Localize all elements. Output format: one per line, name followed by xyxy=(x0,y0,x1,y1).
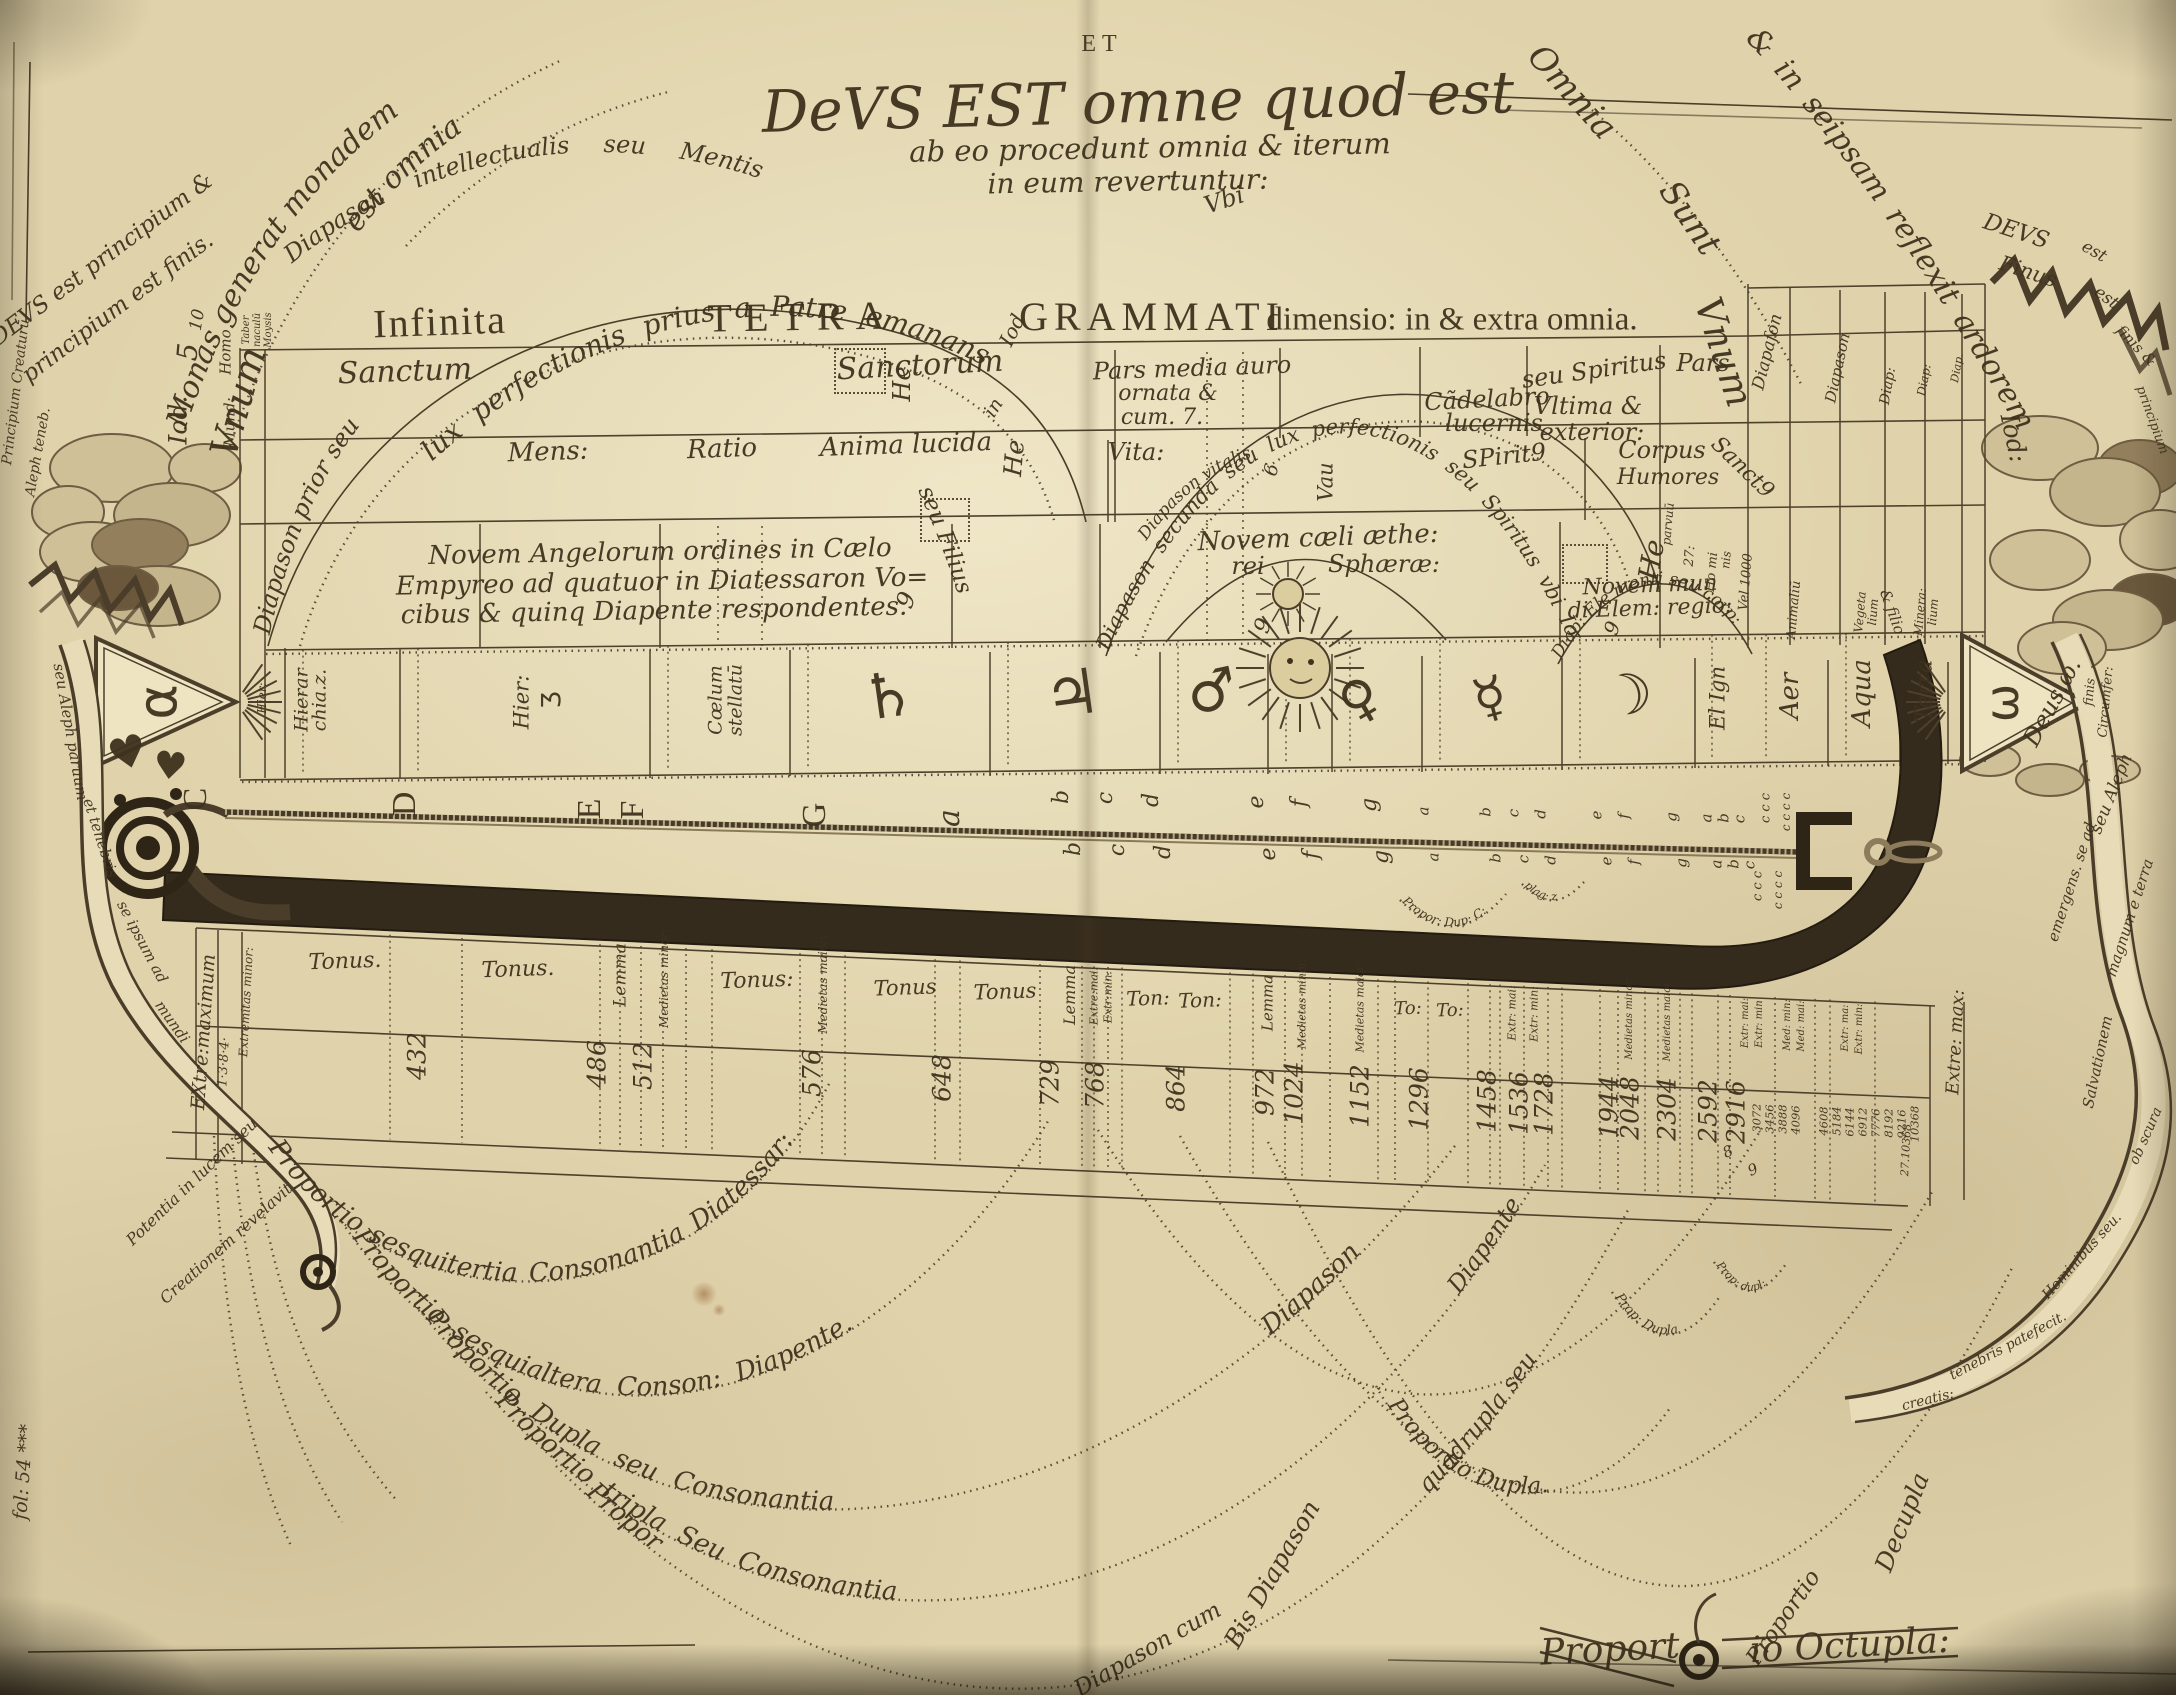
ribbon_right-4: Salvationem xyxy=(2081,1014,2115,1109)
intervals-0: Tonus. xyxy=(308,950,382,975)
corner_left-five: 5 xyxy=(173,342,202,362)
glyphs-heart: ♥ xyxy=(103,728,152,781)
numbers-6: 768 xyxy=(1083,1061,1108,1109)
monochord-letters_small-1: b xyxy=(1479,807,1494,817)
table-right_cols-d1: Diapaſon xyxy=(1750,312,1785,392)
table-row2-vita: Vita: xyxy=(1108,440,1165,464)
fludd-monochord-plate: Monas generat monadem est omnia Diapason… xyxy=(0,0,2176,1695)
numbers_small-5: 5184 xyxy=(1831,1107,1843,1136)
monochord-letters_small-2: c xyxy=(1517,855,1532,863)
table-planets-aqua: Aqua xyxy=(1849,659,1875,727)
monochord-letters_small-5: f xyxy=(1617,813,1632,819)
monochord-letters_small-7: a xyxy=(1700,813,1715,822)
monochord-letters_mid-4: f xyxy=(1301,851,1323,859)
table-planets-hier1b: chia.z. xyxy=(311,669,330,731)
table-row2-six: 6 xyxy=(1261,462,1282,479)
corner_right-deus: DEVS xyxy=(1980,211,2051,254)
numbers-13: 1536 xyxy=(1507,1071,1532,1135)
paper-stain xyxy=(690,1282,718,1306)
table-row2-corpus: Corpus xyxy=(1618,438,1705,462)
intervals-24: Med: min: xyxy=(1783,999,1793,1051)
monochord-letters_mid-2: d xyxy=(1153,845,1175,859)
table-planets-hier2_glyph: Ʒ xyxy=(539,691,565,708)
intervals-8: Lemma xyxy=(1062,965,1078,1025)
corner_right-principium: principium xyxy=(2134,384,2171,456)
ribbon_left-6: fol: 54 *** xyxy=(11,1424,37,1521)
ribbon_right-5: ob scura xyxy=(2127,1105,2165,1166)
intervals-10: Extr:min: xyxy=(1103,971,1114,1023)
intervals-19: Extr: min: xyxy=(1529,986,1540,1042)
numbers_small-9: 8192 xyxy=(1883,1109,1895,1138)
table-planets-alpha: α xyxy=(131,684,185,720)
glyphs-heart: ♥ xyxy=(151,745,189,786)
table-planets-el_ign: El Ign xyxy=(1708,666,1729,730)
monochord-letters_mid-5: g xyxy=(1371,850,1393,864)
table-right_cols-min2: lium xyxy=(1926,598,1940,626)
corner_left-naculum: naculū xyxy=(253,313,263,347)
corner_right-omnia: Omnia xyxy=(1522,39,1623,146)
table-right_cols-d5: Diap. xyxy=(1949,353,1965,384)
title-main: DeVS EST omne quod est xyxy=(761,63,1515,141)
intervals-2: Lemma xyxy=(613,943,630,1007)
numbers-8: 972 xyxy=(1253,1068,1278,1116)
table-planets-coelum1: Cœlum xyxy=(707,665,726,735)
monochord-letters_small-3: d xyxy=(1544,855,1559,865)
monochord-c4: c c c c xyxy=(1780,793,1792,831)
monochord-letters_mid-3: e xyxy=(1246,796,1268,809)
extremes-left1: EXtre:maximum xyxy=(189,953,219,1110)
table-planets-mars: ♂ xyxy=(1182,659,1243,724)
intervals-9: Extre:mai: xyxy=(1089,967,1100,1025)
intervals-5: Medietas maior: xyxy=(817,934,829,1033)
intervals-14: Medietas minor. xyxy=(1297,959,1308,1049)
numbers-0: 432 xyxy=(405,1032,430,1080)
monochord-letters_small-6: g xyxy=(1675,858,1690,868)
ribbon_right-8: creatis: xyxy=(1901,1387,1956,1413)
monochord-letters_mid-4: f xyxy=(1289,799,1311,807)
corner_right-finis: finis & xyxy=(2113,323,2159,370)
numbers-14: 1728 xyxy=(1532,1072,1557,1136)
monochord-c4: c c c c xyxy=(1772,871,1784,909)
intervals-1: Tonus. xyxy=(481,958,555,983)
table-row1-seu_spiritus: seu Spiritus xyxy=(1520,348,1668,392)
table-planets-hier2: Hier: xyxy=(512,675,533,730)
header-grammati: GRAMMATI xyxy=(1019,297,1285,337)
table-row1-candelabro2: lucernis xyxy=(1445,411,1543,435)
ribbon_left-1: et tenebris xyxy=(80,797,120,880)
intervals-26: Extr: ma: xyxy=(1841,1004,1851,1051)
table-right_cols-nis: nis xyxy=(1719,551,1733,570)
ribbon_right-7: tenebris patefecit. xyxy=(1947,1309,2068,1382)
table-planets-mercury: ☿ xyxy=(1467,668,1513,729)
bottom-arc4b: Diapason cum xyxy=(1071,1599,1226,1695)
monochord-letters_small-8: b xyxy=(1717,813,1732,823)
corner_right-iod: Iod: xyxy=(1997,411,2032,464)
bottom-octupla1: Proport xyxy=(1539,1628,1680,1671)
monochord-letters_small-8: b xyxy=(1727,859,1742,869)
corner_left-iod: Iod. xyxy=(166,396,191,445)
monochord-c3: c c c xyxy=(1752,871,1765,901)
intervals-22: Extr: mai: xyxy=(1741,998,1751,1048)
numbers_small-8: 7776 xyxy=(1870,1108,1882,1137)
numbers-5: 729 xyxy=(1038,1059,1063,1107)
monochord-letters_small-0: a xyxy=(1427,852,1442,861)
table-row2-he2: He xyxy=(1000,439,1028,478)
table-row3-elem2: di Elem: regio: xyxy=(1567,595,1732,623)
monochord-letters_small-2: c xyxy=(1507,809,1522,817)
monochord-letters_big-0: C xyxy=(179,788,213,811)
numbers-18: 2592 xyxy=(1696,1079,1721,1143)
intervals-11: Ton: xyxy=(1126,987,1170,1009)
table-right_cols-homi: Ho mi xyxy=(1704,552,1720,593)
numbers_small-11: 10368 xyxy=(1909,1106,1921,1143)
table-row1-pars_media2: ornata & xyxy=(1118,383,1218,405)
corner_right-est2: est xyxy=(2091,284,2122,313)
monochord-letters_small-4: e xyxy=(1590,811,1605,820)
table-right_cols-n27: 27: xyxy=(1683,545,1698,567)
corner_left-mund: Mund: xyxy=(223,397,238,446)
bottom-bis: Bis Diapason xyxy=(1220,1496,1324,1651)
table-row1-sanctorum: Sanctorum xyxy=(836,347,1004,386)
intervals-21: Medietas maior: xyxy=(1663,979,1673,1062)
numbers-10: 1152 xyxy=(1348,1064,1373,1128)
corner_right-circumfer: Circumfer: xyxy=(2096,666,2115,738)
header-infinita: Infinita xyxy=(372,300,507,345)
monochord-letters_mid-0: b xyxy=(1063,842,1085,856)
numbers-4: 648 xyxy=(930,1054,955,1102)
numbers-3: 576 xyxy=(800,1049,825,1097)
table-row2-humores: Humores xyxy=(1617,467,1719,489)
table-right_cols-d4: Diap: xyxy=(1915,363,1932,397)
monochord-letters_small-6: g xyxy=(1665,812,1680,822)
numbers-16: 2048 xyxy=(1618,1076,1643,1140)
table-row3-caeli2: rei xyxy=(1231,554,1264,578)
table-planets-coelum2: stellatū xyxy=(727,664,746,736)
table-row2-in: in xyxy=(981,395,1007,421)
numbers-2: 512 xyxy=(631,1042,656,1090)
monochord-letters_small-3: d xyxy=(1534,809,1549,819)
ribbon_right-3: magnum e terra xyxy=(2104,857,2156,979)
corner_right-fin_c: finis xyxy=(2082,678,2097,707)
numbers-11: 1296 xyxy=(1407,1067,1432,1131)
numbers_small-6: 6144 xyxy=(1844,1107,1856,1136)
numbers_small-3: 4096 xyxy=(1790,1105,1802,1134)
monochord-letters_small-1: b xyxy=(1489,853,1504,863)
ribbon_left-3: mundi xyxy=(152,998,192,1046)
corner_left-edge2: Aleph teneb. xyxy=(23,406,52,497)
monochord-letters_mid-2: d xyxy=(1141,793,1163,807)
intervals-25: Med: mai: xyxy=(1797,1000,1807,1051)
text-labels-layer: ETDeVS EST omne quod estab eo procedunt … xyxy=(0,0,2176,1695)
table-planets-venus: ♀ xyxy=(1331,668,1390,732)
paper-stain-small xyxy=(712,1304,726,1316)
table-row2-spiritus: SPirit9 xyxy=(1461,440,1547,473)
intervals-17: To: xyxy=(1436,1002,1464,1021)
table-row1-pars: Pars xyxy=(1676,351,1729,375)
intervals-12: Ton: xyxy=(1178,989,1222,1011)
numbers_small-1: 3456 xyxy=(1764,1104,1776,1133)
table-row3-caeli3: Sphæræ: xyxy=(1328,552,1440,576)
table-right_cols-filio: & filio xyxy=(1877,587,1907,636)
intervals-3: Medietas minor: xyxy=(658,928,670,1028)
intervals-18: Extr: mai: xyxy=(1507,985,1518,1040)
ribbon_right-6: Hominibus seu. xyxy=(2040,1210,2124,1301)
monochord-letters_mid-5: g xyxy=(1359,798,1381,812)
intervals-15: Medietas maior: xyxy=(1355,961,1366,1052)
bottom-decupla: Decupla xyxy=(1871,1469,1933,1575)
table-planets-omega: ω xyxy=(1979,684,2025,723)
intervals-6: Tonus xyxy=(873,976,937,999)
table-row1-pars_media1: Pars media auro xyxy=(1092,353,1291,384)
table-row1-sanctum: Sanctum xyxy=(337,355,472,390)
intervals-16: To: xyxy=(1394,1000,1422,1019)
table-row2-vau: Vau xyxy=(1316,462,1337,501)
intervals-13: Lemma xyxy=(1261,975,1276,1031)
table-right_cols-d2: Diapason xyxy=(1823,332,1852,404)
numbers_small-2: 3888 xyxy=(1777,1104,1789,1133)
intervals-20: Medietas minor: xyxy=(1625,976,1635,1059)
monochord-letters_small-5: f xyxy=(1627,859,1642,865)
ribbon_left-2: se ipsum ad xyxy=(114,898,170,985)
monochord-letters_big-2: E xyxy=(573,799,607,820)
ribbon_right-2: emergens. se ad xyxy=(2046,821,2099,944)
monochord-letters_mid-1: c xyxy=(1095,792,1117,804)
numbers_small-7: 6912 xyxy=(1857,1108,1869,1137)
table-right_cols-animalium: Animaliū xyxy=(1785,580,1803,640)
bottom-octupla2: io Octupla: xyxy=(1749,1623,1951,1669)
extremes-right: Extre: max: xyxy=(1944,989,1968,1095)
corner_right-sunt: Sunt xyxy=(1653,175,1726,261)
monochord-letters_mid-3: e xyxy=(1258,848,1280,861)
table-row2-ratio: Ratio xyxy=(687,435,758,463)
monochord-letters_big-3: F xyxy=(616,801,650,820)
corner_left-moysis: Moysis xyxy=(264,312,274,347)
corner_right-est1: est xyxy=(2079,238,2110,266)
numbers-19: 2916 xyxy=(1724,1080,1749,1144)
table-right_cols-vel: Vel 1000 xyxy=(1737,553,1755,611)
monochord-c3: c c c xyxy=(1760,793,1773,823)
table-planets-terra: Terra xyxy=(1914,660,1937,723)
table-row1-vltima1: Vltima & xyxy=(1534,394,1642,418)
monochord-letters_big-4: G xyxy=(798,803,832,828)
table-planets-saturn: ♄ xyxy=(856,661,920,730)
table-row2-mens: Mens: xyxy=(507,438,589,467)
numbers_small-10: 9216 xyxy=(1896,1109,1908,1138)
corner_left-homo: Homo xyxy=(219,329,234,374)
monochord-letters_mid-0: b xyxy=(1051,790,1073,804)
extremes-left3: Extremitas minor: xyxy=(237,947,255,1058)
numbers-12: 1458 xyxy=(1475,1070,1500,1134)
table-planets-jupiter: ♃ xyxy=(1040,659,1104,728)
numbers-1: 486 xyxy=(585,1040,610,1088)
header-dimensio: dimensio: in & extra omnia. xyxy=(1266,304,1637,337)
monochord-letters_small-9: c xyxy=(1743,860,1758,868)
table-planets-aer: Aer xyxy=(1777,673,1803,720)
intervals-27: Extr: min: xyxy=(1855,1004,1865,1055)
digits-eight: 8 xyxy=(1721,1143,1736,1161)
header-tetra: TETRA xyxy=(707,295,897,338)
digits-nine: 9 xyxy=(1746,1161,1761,1179)
title-line2: ab eo procedunt omnia & iterum xyxy=(909,129,1391,166)
numbers-9: 1024 xyxy=(1282,1061,1307,1125)
title-et: ET xyxy=(1081,32,1122,56)
table-row1-pars_media3: cum. 7. xyxy=(1121,407,1203,429)
corner_left-taber: Taber xyxy=(242,316,252,345)
table-row3-nine2: 9 xyxy=(1251,616,1276,637)
table-planets-hier0: Hier: xyxy=(256,682,268,713)
monochord-letters_small-7: a xyxy=(1710,859,1725,868)
table-right_cols-d3: Diap: xyxy=(1878,366,1898,406)
table-row2-anima: Anima lucida xyxy=(819,429,992,461)
table-right_cols-parvum: parvuū xyxy=(1660,502,1676,546)
monochord-letters_mid-1: c xyxy=(1107,844,1129,856)
ribbon_left-0: seu Aleph paruum xyxy=(51,662,90,801)
numbers-7: 864 xyxy=(1164,1064,1189,1112)
corner_right-finus: Finus xyxy=(1997,253,2060,291)
monochord-letters_big-1: D xyxy=(388,792,422,817)
table-row2-he1: He xyxy=(890,366,914,401)
intervals-7: Tonus xyxy=(973,980,1037,1003)
table-right_cols-veg2: lium xyxy=(1866,598,1880,626)
monochord-letters_small-4: e xyxy=(1600,857,1615,866)
monochord-letters_small-0: a xyxy=(1417,806,1432,815)
intervals-4: Tonus: xyxy=(720,969,794,994)
extremes-left2: 1·3·8·4· xyxy=(216,1037,232,1087)
table-row3-angels3: cibus & quinq Diapente respondentes. xyxy=(401,594,908,629)
numbers_small-4: 4608 xyxy=(1818,1106,1830,1135)
monochord-letters_big-5: a xyxy=(935,809,965,827)
corner_left-ten: 10 xyxy=(188,308,208,332)
intervals-23: Extr: min xyxy=(1755,1000,1765,1047)
numbers-17: 2304 xyxy=(1655,1077,1680,1141)
table-planets-luna: ☽ xyxy=(1598,663,1659,728)
numbers_small-0: 3072 xyxy=(1751,1103,1763,1132)
monochord-letters_small-9: c xyxy=(1733,814,1748,822)
